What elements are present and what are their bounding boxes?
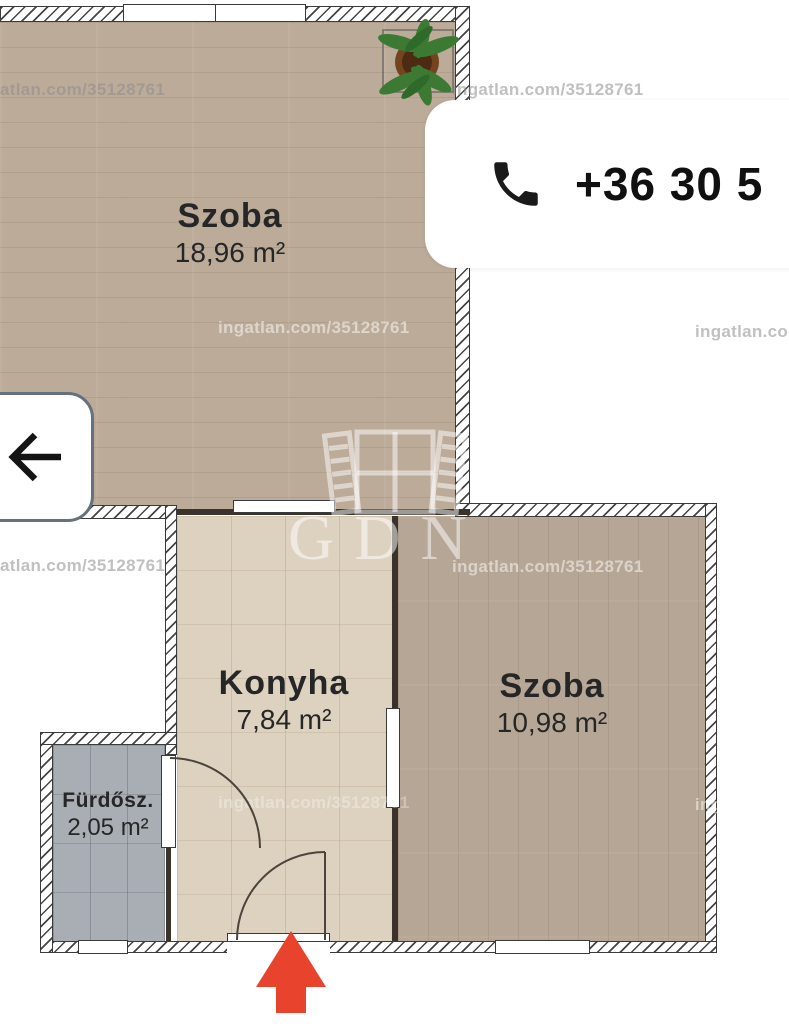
wall-kitchen-left (165, 505, 177, 755)
room-name: Szoba (497, 666, 608, 706)
room-label-kitchen: Konyha 7,84 m² (219, 663, 350, 736)
watermark: ingatlan.com/3 (695, 322, 789, 342)
window-bath-bottom (78, 940, 128, 954)
wall-bottom (40, 941, 717, 953)
back-button[interactable] (0, 392, 94, 522)
entrance-threshold (227, 933, 330, 942)
room-label-small: Szoba 10,98 m² (497, 666, 608, 739)
window-small-bottom (495, 940, 590, 954)
phone-call-button[interactable]: +36 30 5 (425, 100, 789, 268)
window-top-left (123, 4, 216, 22)
watermark: ingatlan.com/35128761 (452, 80, 644, 100)
entrance-opening (227, 941, 330, 953)
room-area: 7,84 m² (219, 703, 350, 736)
room-name: Fürdősz. (62, 789, 154, 814)
room-name: Szoba (175, 196, 286, 236)
watermark: atlan.com/35128761 (0, 556, 165, 576)
wall-bath-left (40, 732, 53, 953)
arrow-left-icon (1, 427, 67, 487)
room-area: 18,96 m² (175, 236, 286, 269)
wall-small-top (455, 503, 717, 517)
room-label-large: Szoba 18,96 m² (175, 196, 286, 269)
phone-icon (487, 155, 545, 213)
watermark: atlan.com/35128761 (0, 80, 165, 100)
wall-bath-kitchen-divider (166, 846, 171, 941)
wall-right (705, 503, 717, 953)
room-area: 2,05 m² (62, 814, 154, 842)
phone-number: +36 30 5 (575, 157, 763, 211)
room-name: Konyha (219, 663, 350, 703)
window-top-right (215, 4, 306, 22)
wall-bath-top (40, 732, 177, 745)
room-bathroom-floor (53, 745, 165, 941)
gdn-logo: GDN (288, 506, 487, 570)
room-area: 10,98 m² (497, 706, 608, 739)
door-bathroom (161, 755, 176, 848)
watermark: ingatlan.com/3 (695, 795, 789, 815)
watermark: ingatlan.com/35128761 (218, 793, 410, 813)
room-label-bathroom: Fürdősz. 2,05 m² (62, 789, 154, 842)
watermark: ingatlan.com/35128761 (218, 318, 410, 338)
screen: Szoba 18,96 m² Konyha 7,84 m² Szoba 10,9… (0, 0, 789, 1024)
